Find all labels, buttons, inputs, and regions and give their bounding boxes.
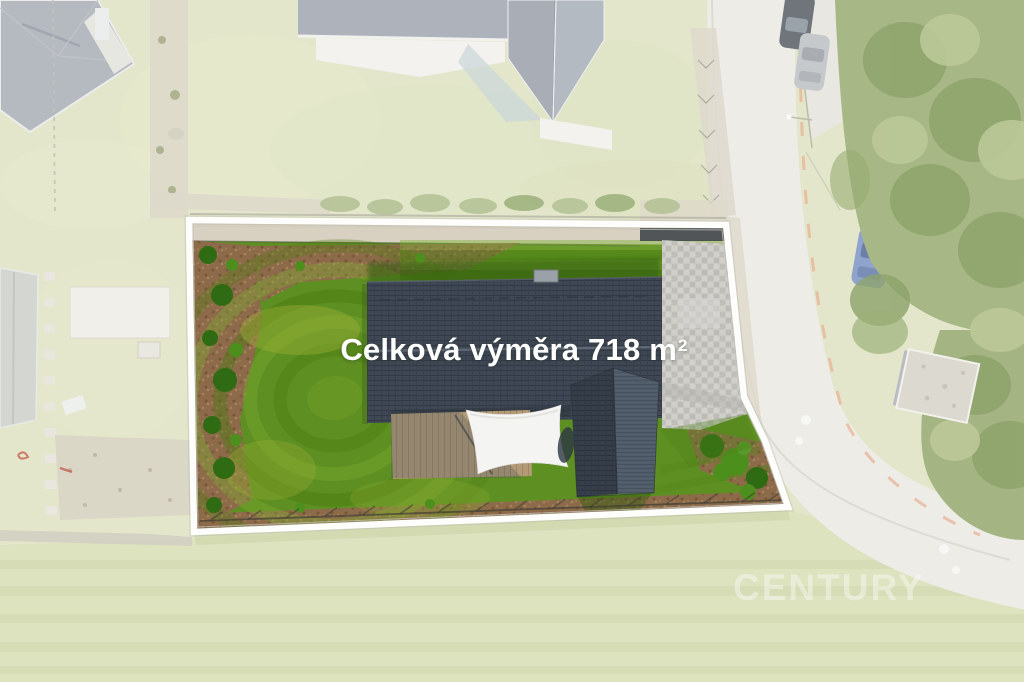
area-label-text: Celková výměra 718 m [340,332,677,367]
aerial-photo: Celková výměra 718 m2 CENTURY [0,0,1024,682]
wing-roof [571,368,659,497]
chimney-vent [534,270,558,282]
gravel-yard [55,435,190,520]
plot [145,210,800,567]
brand-watermark: CENTURY [733,569,924,606]
area-label-superscript: 2 [678,336,688,355]
concrete-pad [70,287,170,338]
area-label: Celková výměra 718 m2 [340,334,687,365]
